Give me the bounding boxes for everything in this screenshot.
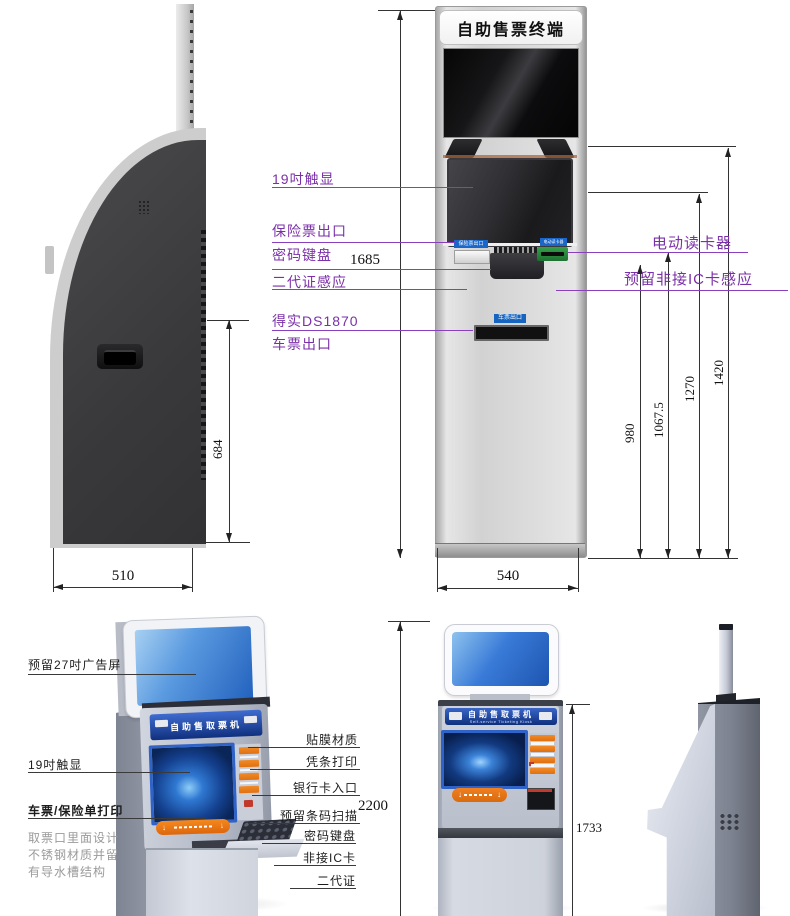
dim-1685-top-tick	[378, 10, 435, 11]
side-vent-serration	[201, 230, 206, 480]
iso-ad-screen	[135, 626, 254, 706]
dim-2200-label: 2200	[358, 798, 398, 815]
dim-2200-arrow	[397, 622, 403, 631]
callout-pin-pad: 密码键盘	[258, 827, 356, 844]
dim-2200-line	[400, 621, 401, 916]
dim-1733-label: 1733	[576, 820, 616, 836]
callout-barcode-scan: 预留条码扫描	[258, 807, 358, 824]
touch-screen	[447, 158, 573, 247]
bottom-side-view	[630, 610, 790, 916]
insurance-slot-badge: 保险票出口	[454, 240, 488, 248]
iso-logo-right	[244, 716, 257, 723]
callout-bank-card: 银行卡入口	[258, 779, 358, 796]
callout-ad-screen-27-line	[28, 674, 196, 675]
dim-1067-arrow-b	[665, 549, 671, 558]
bf-outlet-pill-text	[464, 794, 494, 796]
callout-barcode-scan-line	[248, 823, 360, 824]
callout-card-reader: 电动读卡器	[652, 232, 732, 253]
note-line-2: 不锈钢材质并留	[28, 846, 119, 863]
ad-screen-edge-perforation	[190, 10, 193, 142]
kiosk-base	[435, 543, 585, 557]
callout-ticket-outlet: 车票出口	[272, 334, 332, 354]
spec-sheet: 684 510 自助售票终端 保险票出口 电动读卡器 车票出口 1685	[0, 0, 790, 916]
bf-ticket-slot-lamp	[528, 789, 552, 792]
callout-touch-19-line	[28, 772, 190, 773]
side-notch	[45, 246, 54, 274]
dim-980-arrow-b	[637, 549, 643, 558]
front-view: 自助售票终端 保险票出口 电动读卡器 车票出口	[420, 0, 600, 600]
ground-tick-right	[588, 558, 738, 559]
callout-printer-model: 得实DS1870	[272, 311, 359, 331]
bottom-front-view: 自助售取票机 Self-service Ticketing Kiosk	[410, 610, 610, 916]
dim-510-line	[53, 587, 192, 588]
bf-pedestal	[438, 838, 563, 916]
note-line-3: 有导水槽结构	[28, 863, 106, 880]
bf-slot-2	[531, 753, 554, 756]
dim-684-arrow-up	[226, 320, 232, 329]
card-reader-badge: 电动读卡器	[540, 238, 567, 246]
side-view	[0, 0, 260, 600]
bf-slot-label-4	[530, 768, 555, 774]
dim-1420-label: 1420	[711, 348, 727, 398]
dim-980-line	[640, 265, 641, 558]
kiosk-title-plate: 自助售票终端	[439, 10, 583, 45]
bf-header-en: Self-service Ticketing Kiosk	[470, 719, 533, 724]
bf-separator-band	[438, 828, 563, 838]
ticket-outlet-badge: 车票出口	[494, 314, 526, 323]
dim-540-ext-right	[578, 548, 579, 592]
side-body-panel	[63, 140, 206, 544]
bf-logo-left	[449, 712, 462, 720]
bs-front-wedge	[645, 704, 715, 916]
insurance-ticket-slot	[454, 250, 490, 264]
iso-slot-label-2	[239, 760, 259, 768]
bf-slot-1	[531, 742, 554, 745]
dim-1685-line	[400, 10, 401, 558]
callout-ticket-print: 车票/保险单打印	[28, 802, 123, 819]
bf-slot-label-1	[530, 735, 555, 741]
dim-1270-arrow-b	[696, 549, 702, 558]
bf-slot-3	[531, 764, 554, 767]
callout-id-card: 二代证	[258, 872, 356, 889]
callout-ad-screen-27: 预留27吋广告屏	[28, 656, 121, 673]
callout-film-material: 贴膜材质	[258, 731, 358, 748]
iso-header-text: 自助售取票机	[170, 717, 243, 733]
dim-540-arrow-right	[568, 585, 577, 591]
iso-logo-left	[155, 720, 168, 727]
door-handle-inner	[104, 350, 136, 365]
callout-pin-keypad-line	[272, 269, 491, 270]
bs-ad-bar	[719, 624, 733, 702]
card-reader-slot	[541, 252, 564, 256]
dim-1733-arrow	[569, 705, 575, 714]
dim-1270-arrow	[696, 194, 702, 203]
callout-id-sensor-line	[272, 289, 467, 290]
bf-slot-label-2	[530, 746, 555, 752]
dim-540-line	[437, 588, 578, 589]
iso-touch-screen	[149, 743, 238, 826]
dim-540-arrow-left	[438, 585, 447, 591]
dim-1685-arrow-up	[397, 11, 403, 20]
dim-510-arrow-right	[182, 584, 191, 590]
callout-touch-19: 19吋触显	[28, 756, 82, 773]
callout-pin-keypad: 密码键盘	[272, 245, 332, 265]
dim-1685-arrow-down	[397, 549, 403, 558]
dim-980-label: 980	[622, 408, 638, 458]
ticket-outlet-slot	[474, 325, 549, 341]
pin-keypad	[490, 253, 544, 279]
callout-touch-display: 19吋触显	[272, 169, 335, 189]
dim-1067-label: 1067.5	[651, 388, 667, 452]
callout-ic-sensor-line	[556, 290, 788, 291]
dim-510-label: 510	[93, 568, 153, 585]
dim-1067-arrow	[665, 253, 671, 262]
dim-1270-tick	[588, 192, 708, 193]
kiosk-title: 自助售票终端	[457, 16, 565, 40]
dim-1270-label: 1270	[682, 364, 698, 414]
bf-header-text: 自助售取票机	[468, 710, 534, 719]
iso-slot-label-3	[239, 773, 259, 781]
callout-receipt-print: 凭条打印	[258, 753, 358, 770]
callout-touch-display-line	[272, 187, 473, 188]
callout-pin-pad-line	[262, 843, 356, 844]
bf-touch-screen	[441, 730, 528, 789]
callout-contactless-ic-line	[274, 865, 356, 866]
dim-684-bottom-tick	[195, 542, 250, 543]
speaker-grill-dots	[138, 200, 150, 214]
callout-receipt-print-line	[250, 769, 360, 770]
dim-1420-line	[728, 148, 729, 558]
dim-1420-arrow-b	[725, 549, 731, 558]
iso-pedestal	[146, 850, 258, 916]
callout-bank-card-line	[252, 795, 360, 796]
dim-684-label: 684	[210, 424, 226, 474]
dim-1420-tick	[588, 146, 736, 147]
bs-vent	[719, 813, 741, 831]
dim-1067-line	[668, 253, 669, 558]
dim-684-arrow-down	[226, 533, 232, 542]
dim-510-ext-right	[192, 548, 193, 592]
callout-ticket-print-line	[28, 818, 206, 819]
callout-insurance-outlet: 保险票出口	[272, 221, 347, 241]
callout-id-card-line	[290, 888, 356, 889]
bf-logo-right	[539, 712, 552, 720]
callout-card-reader-line	[568, 252, 748, 253]
note-line-1: 取票口里面设计	[28, 829, 119, 846]
callout-ticket-outlet-line	[272, 330, 473, 331]
bs-ad-bar-cap	[719, 624, 733, 630]
callout-film-material-line	[248, 747, 360, 748]
iso-scanner-lamp	[244, 800, 253, 807]
ad-screen	[443, 48, 579, 138]
dim-1733-line	[572, 704, 573, 916]
dim-1685-label: 1685	[350, 252, 396, 269]
callout-contactless-ic: 非接IC卡	[258, 849, 356, 866]
bf-ad-screen	[452, 632, 549, 686]
callout-insurance-outlet-line	[272, 242, 455, 243]
dim-684-line	[229, 320, 230, 542]
callout-ic-sensor: 预留非接IC卡感应	[624, 268, 753, 289]
dim-1420-arrow	[725, 148, 731, 157]
dim-510-arrow-left	[54, 584, 63, 590]
dim-540-label: 540	[478, 568, 538, 585]
iso-slot-label-4	[239, 786, 259, 794]
